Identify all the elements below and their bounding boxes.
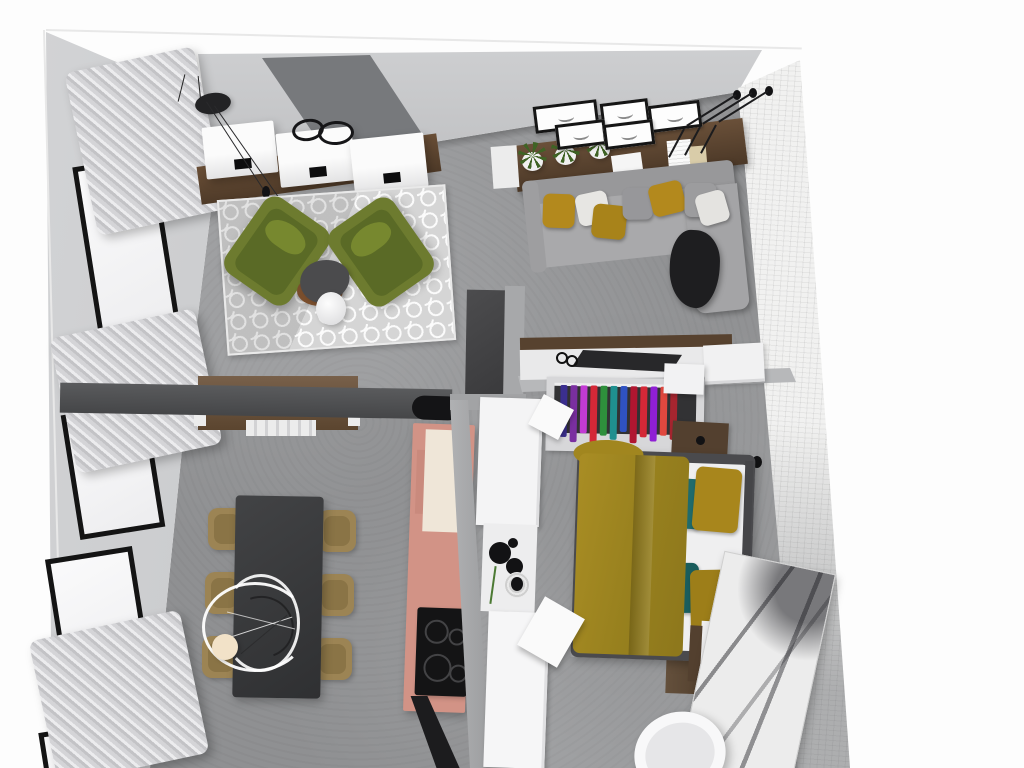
cabinet-handle xyxy=(383,172,401,184)
corner-sofa xyxy=(522,159,751,315)
frame-art xyxy=(573,130,590,141)
bathtub-basin xyxy=(637,714,723,768)
dark-wardrobe xyxy=(465,290,507,397)
clothes-item xyxy=(650,386,658,441)
clothes-item xyxy=(630,386,638,443)
pillow-mustard xyxy=(691,466,742,534)
clothes-item xyxy=(580,385,588,433)
plant-leaves xyxy=(518,142,547,169)
induction-cooktop xyxy=(414,607,469,697)
clothes-item xyxy=(600,386,608,436)
console-legs xyxy=(246,420,316,436)
black-pot xyxy=(508,538,518,548)
burner xyxy=(424,619,449,644)
frame-art xyxy=(621,130,638,141)
outer-wall-edge-top xyxy=(46,29,802,49)
potted-plant xyxy=(518,142,548,172)
cabinet-handle xyxy=(309,166,327,178)
clothes-item xyxy=(660,387,668,436)
desk-glasses xyxy=(566,355,578,367)
ring-chandelier xyxy=(200,572,310,672)
chair-pad xyxy=(320,644,346,674)
wall-cabinet xyxy=(349,132,428,193)
frame-art xyxy=(558,112,575,123)
apartment-render xyxy=(0,0,1024,768)
chair-pad xyxy=(324,516,350,546)
frame-art xyxy=(617,109,634,120)
drawer-unit xyxy=(703,342,765,384)
clothes-item xyxy=(610,386,618,440)
burner xyxy=(423,653,452,682)
wardrobe-side-box xyxy=(663,363,704,394)
clothes-item xyxy=(620,386,628,432)
wall-cabinet xyxy=(201,120,278,179)
nightstand-knob xyxy=(696,436,705,445)
white-vase xyxy=(316,292,346,325)
clothes-item xyxy=(590,385,598,443)
dining-chair xyxy=(318,510,356,552)
duvet-fold xyxy=(629,455,656,656)
frame-art xyxy=(667,112,684,123)
sofa-pillow-mustard xyxy=(542,193,575,228)
chair-pad xyxy=(322,580,348,610)
clothes-item xyxy=(640,386,648,437)
black-kettle xyxy=(511,577,523,591)
sideboard-white-end xyxy=(491,145,520,189)
clothes-rail-items xyxy=(559,385,688,447)
duvet xyxy=(573,453,690,657)
chandelier-globe xyxy=(212,634,238,660)
